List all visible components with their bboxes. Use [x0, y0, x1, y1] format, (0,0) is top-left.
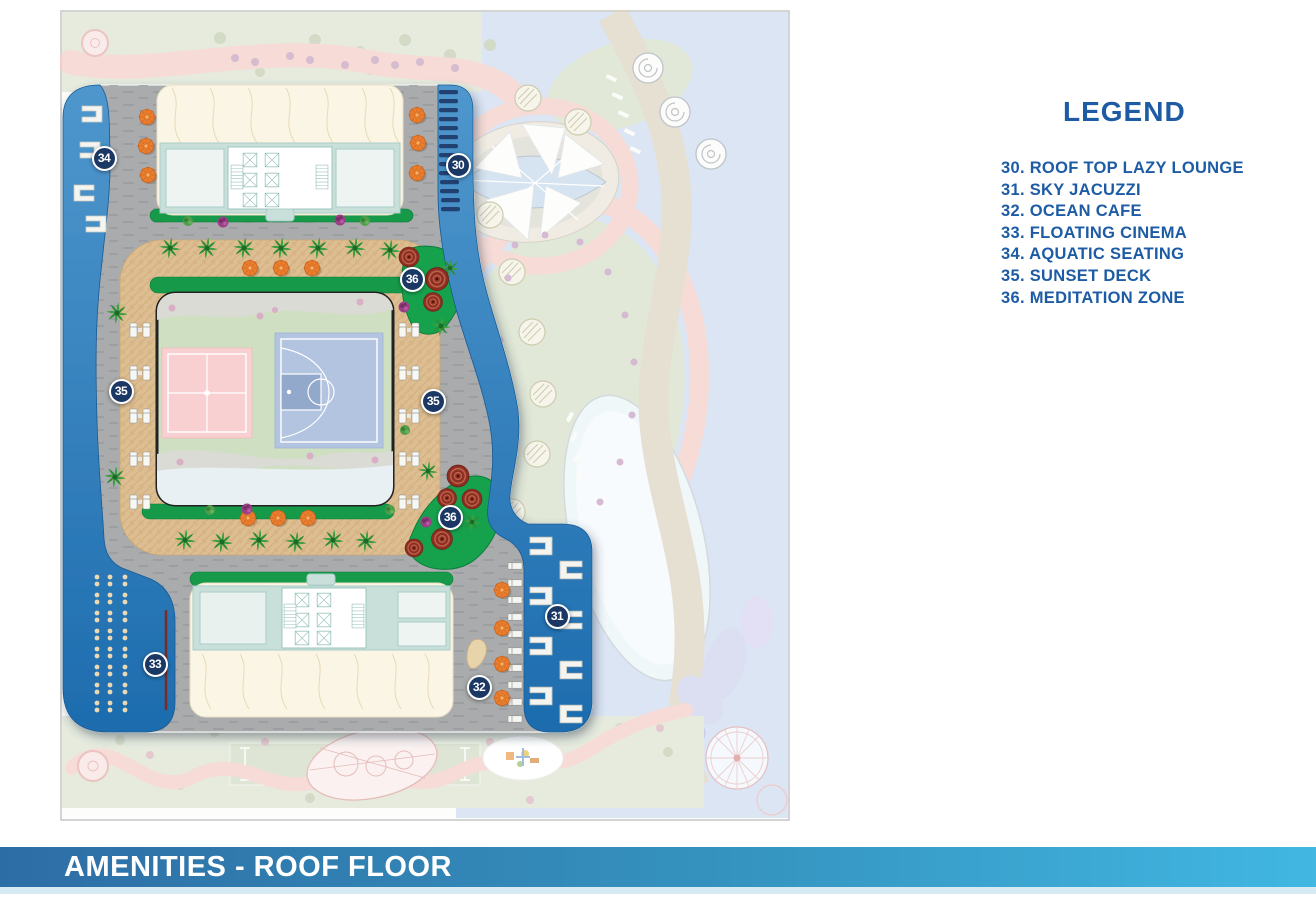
legend-item-31: 31. SKY JACUZZI — [1001, 180, 1301, 202]
legend-item-34: 34. AQUATIC SEATING — [1001, 244, 1301, 266]
page-title: AMENITIES - ROOF FLOOR — [0, 851, 452, 884]
basketball-court — [275, 333, 383, 448]
legend-title: LEGEND — [1001, 96, 1301, 128]
plan-marker-34: 34 — [92, 146, 117, 171]
tower-bottom-roof — [190, 574, 453, 717]
padel-court — [162, 348, 252, 438]
legend-items: 30. ROOF TOP LAZY LOUNGE 31. SKY JACUZZI… — [1001, 158, 1301, 309]
tower-top-roof — [157, 85, 403, 221]
site-plan: 34 30 36 35 35 36 31 33 32 — [60, 10, 790, 822]
plan-marker-32: 32 — [467, 675, 492, 700]
plan-marker-36a: 36 — [400, 267, 425, 292]
central-courtyard — [157, 293, 393, 505]
marker-number: 34 — [98, 151, 110, 165]
marker-number: 32 — [473, 680, 485, 694]
legend-item-32: 32. OCEAN CAFE — [1001, 201, 1301, 223]
marker-number: 33 — [149, 657, 161, 671]
footer-bar: AMENITIES - ROOF FLOOR — [0, 847, 1316, 887]
legend-item-30: 30. ROOF TOP LAZY LOUNGE — [1001, 158, 1301, 180]
marker-number: 31 — [551, 609, 563, 623]
plan-marker-33: 33 — [143, 652, 168, 677]
plan-marker-35b: 35 — [421, 389, 446, 414]
marker-number: 35 — [427, 394, 439, 408]
marker-number: 36 — [444, 510, 456, 524]
legend-item-33: 33. FLOATING CINEMA — [1001, 223, 1301, 245]
legend: LEGEND 30. ROOF TOP LAZY LOUNGE 31. SKY … — [1001, 96, 1301, 309]
marker-number: 30 — [452, 158, 464, 172]
plan-marker-31: 31 — [545, 604, 570, 629]
marker-number: 35 — [115, 384, 127, 398]
legend-item-35: 35. SUNSET DECK — [1001, 266, 1301, 288]
plan-marker-30: 30 — [446, 153, 471, 178]
plan-marker-36b: 36 — [438, 505, 463, 530]
marker-number: 36 — [406, 272, 418, 286]
plan-marker-35a: 35 — [109, 379, 134, 404]
legend-item-36: 36. MEDITATION ZONE — [1001, 288, 1301, 310]
footer-substrip — [0, 887, 1316, 894]
